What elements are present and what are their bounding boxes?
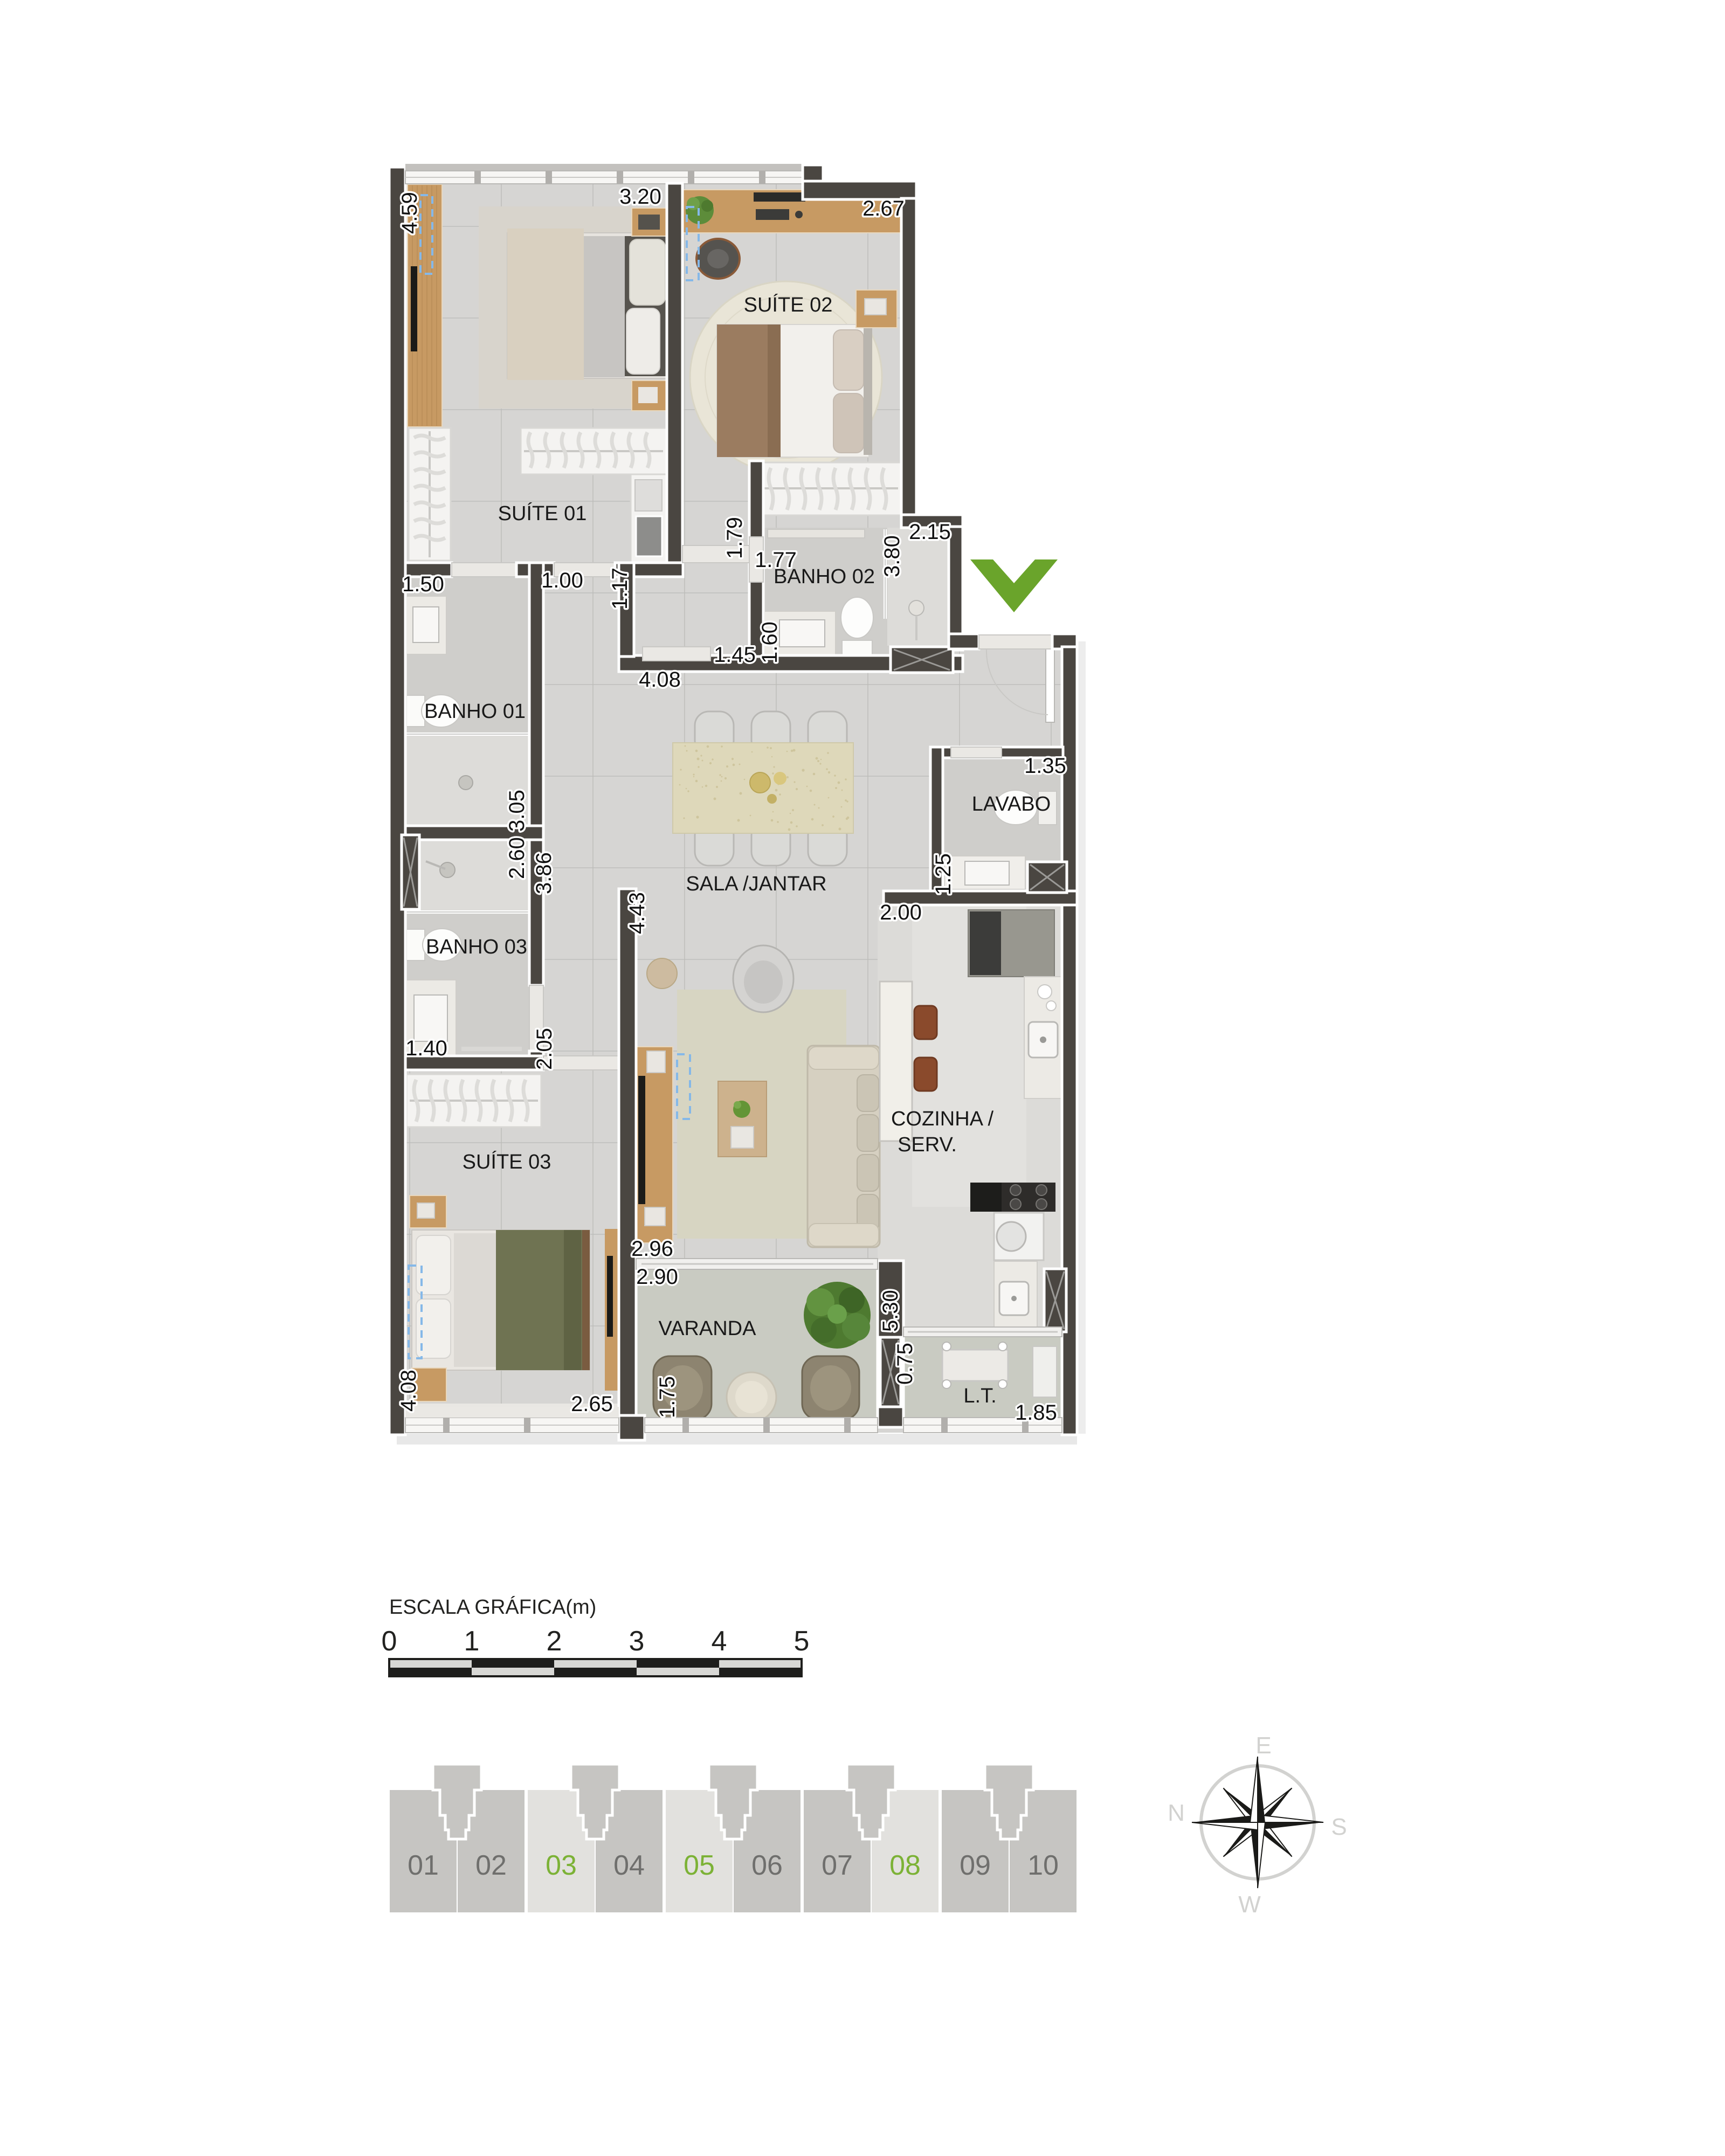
svg-text:2: 2	[547, 1626, 562, 1657]
svg-text:1.35: 1.35	[1024, 754, 1066, 778]
svg-text:S: S	[1331, 1814, 1347, 1840]
svg-text:10: 10	[1027, 1850, 1059, 1881]
svg-text:5: 5	[794, 1626, 810, 1657]
svg-text:08: 08	[889, 1850, 921, 1881]
svg-text:4.43: 4.43	[625, 892, 649, 934]
svg-text:3.80: 3.80	[880, 535, 904, 577]
svg-text:1.00: 1.00	[541, 569, 583, 592]
svg-text:2.05: 2.05	[533, 1028, 556, 1070]
svg-text:W: W	[1238, 1891, 1261, 1918]
svg-text:2.00: 2.00	[880, 901, 922, 924]
svg-text:2.90: 2.90	[636, 1265, 678, 1289]
svg-text:02: 02	[475, 1850, 507, 1881]
svg-text:2.96: 2.96	[631, 1237, 673, 1261]
svg-text:1.77: 1.77	[755, 548, 797, 572]
svg-text:L.T.: L.T.	[963, 1385, 996, 1407]
svg-text:SUÍTE 03: SUÍTE 03	[463, 1150, 551, 1173]
svg-text:1.50: 1.50	[402, 572, 444, 596]
svg-text:1.45: 1.45	[714, 643, 756, 667]
svg-text:SALA /JANTAR: SALA /JANTAR	[686, 873, 826, 895]
svg-text:3: 3	[629, 1626, 645, 1657]
svg-text:SUÍTE 02: SUÍTE 02	[744, 293, 833, 316]
svg-text:SUÍTE 01: SUÍTE 01	[498, 502, 587, 525]
svg-text:E: E	[1255, 1732, 1271, 1759]
svg-text:1.17: 1.17	[608, 568, 632, 610]
svg-text:1.85: 1.85	[1015, 1401, 1057, 1425]
svg-text:4.08: 4.08	[397, 1370, 420, 1412]
svg-text:N: N	[1168, 1800, 1185, 1826]
svg-text:4.08: 4.08	[639, 668, 681, 692]
svg-text:2.15: 2.15	[909, 520, 951, 544]
svg-text:0: 0	[382, 1626, 397, 1657]
svg-text:06: 06	[751, 1850, 783, 1881]
svg-text:2.67: 2.67	[862, 197, 905, 220]
svg-text:04: 04	[613, 1850, 645, 1881]
svg-text:4: 4	[712, 1626, 727, 1657]
svg-text:09: 09	[960, 1850, 991, 1881]
svg-text:VARANDA: VARANDA	[659, 1317, 757, 1340]
svg-text:1.75: 1.75	[655, 1376, 679, 1418]
svg-text:BANHO 03: BANHO 03	[426, 936, 527, 958]
svg-text:1: 1	[464, 1626, 480, 1657]
svg-text:03: 03	[546, 1850, 577, 1881]
svg-text:4.59: 4.59	[398, 192, 422, 234]
svg-text:3.05: 3.05	[505, 790, 529, 832]
svg-text:0.75: 0.75	[893, 1343, 917, 1385]
svg-text:1.79: 1.79	[723, 517, 747, 559]
svg-text:01: 01	[408, 1850, 439, 1881]
svg-text:3.86: 3.86	[532, 852, 556, 894]
svg-text:3.20: 3.20	[619, 185, 661, 209]
svg-text:05: 05	[684, 1850, 715, 1881]
svg-text:LAVABO: LAVABO	[972, 793, 1051, 816]
svg-text:1.25: 1.25	[931, 853, 955, 895]
svg-text:2.65: 2.65	[571, 1392, 613, 1416]
svg-text:2.60: 2.60	[505, 837, 529, 879]
svg-text:07: 07	[822, 1850, 853, 1881]
svg-text:BANHO 01: BANHO 01	[424, 700, 526, 723]
svg-text:5.30: 5.30	[879, 1290, 902, 1332]
svg-text:ESCALA GRÁFICA(m): ESCALA GRÁFICA(m)	[389, 1595, 596, 1619]
svg-text:1.40: 1.40	[405, 1036, 447, 1060]
svg-text:1.60: 1.60	[758, 621, 782, 664]
svg-text:COZINHA /: COZINHA /	[891, 1108, 993, 1130]
svg-text:SERV.: SERV.	[898, 1134, 957, 1156]
